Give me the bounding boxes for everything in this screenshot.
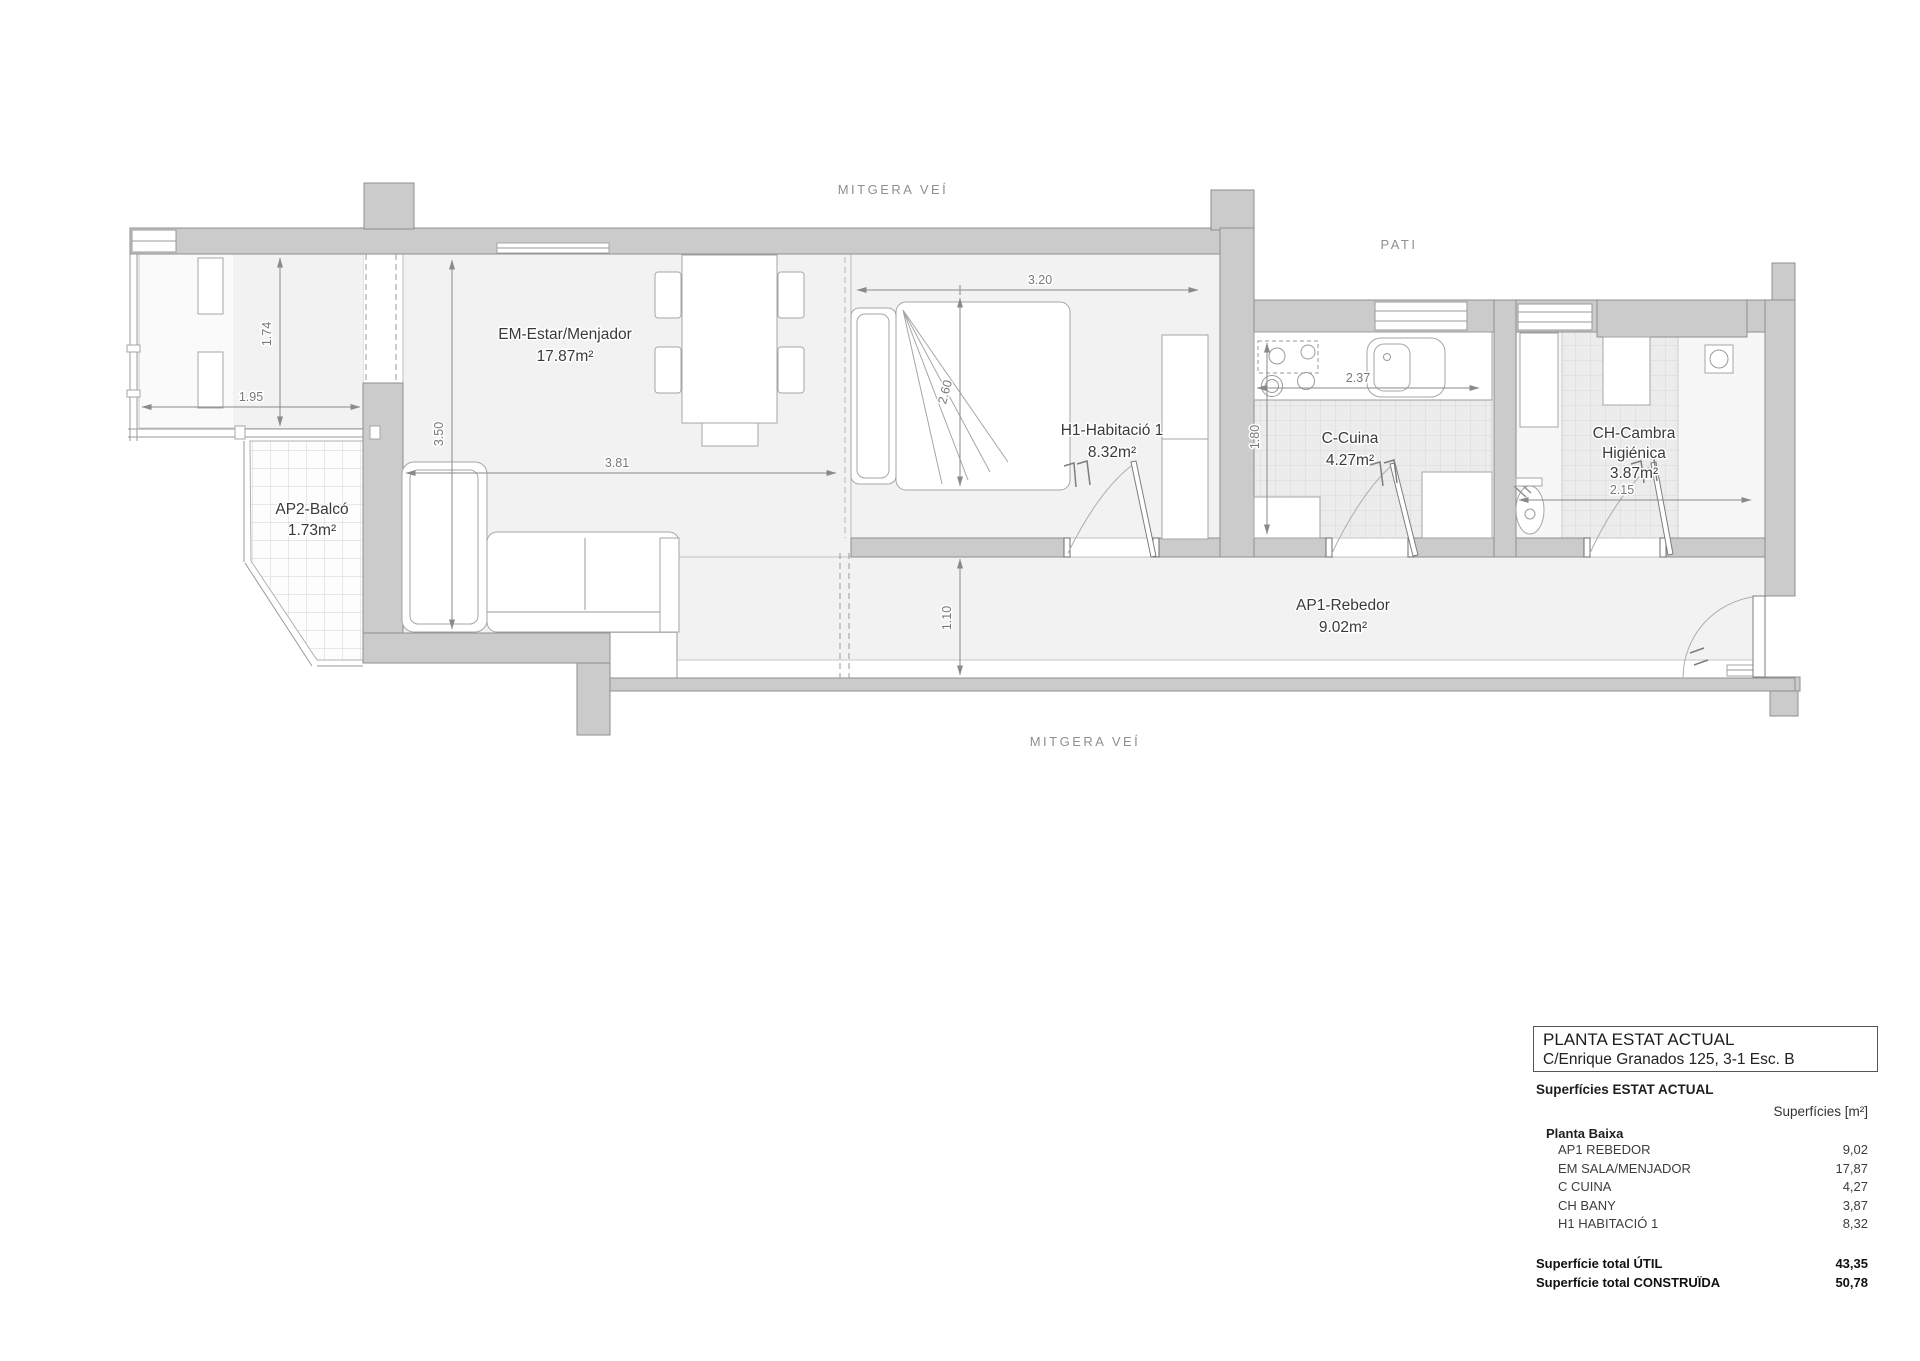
kitchen-cabinet	[1422, 472, 1492, 538]
gallery-planter	[198, 258, 223, 314]
room-label-living: EM-Estar/Menjador	[498, 326, 632, 343]
title-block: PLANTA ESTAT ACTUAL C/Enrique Granados 1…	[1533, 1026, 1878, 1072]
table-row: C CUINA 4,27	[1536, 1178, 1868, 1197]
kitchen-hall-wall-2	[1412, 538, 1494, 557]
row-label: AP1 REBEDOR	[1558, 1141, 1650, 1160]
row-label: C CUINA	[1558, 1178, 1611, 1197]
balcony-floor	[250, 441, 363, 660]
bathroom-top-block	[1597, 300, 1747, 337]
dim-3-20: 3.20	[1028, 273, 1052, 287]
bedroom-kitchen-wall	[1220, 228, 1254, 557]
table-row: CH BANY 3,87	[1536, 1197, 1868, 1216]
table-row: AP1 REBEDOR 9,02	[1536, 1141, 1868, 1160]
washing-machine	[1705, 345, 1733, 373]
row-label: CH BANY	[1558, 1197, 1616, 1216]
shower-tray	[1603, 337, 1650, 405]
table-row: EM SALA/MENJADOR 17,87	[1536, 1160, 1868, 1179]
sofa-seat	[487, 532, 679, 632]
dim-1-95: 1.95	[239, 390, 263, 404]
room-label-kitchen: C-Cuina	[1322, 430, 1379, 447]
table-row: H1 HABITACIÓ 1 8,32	[1536, 1215, 1868, 1234]
dim-3-81: 3.81	[605, 456, 629, 470]
door-jamb	[1064, 538, 1070, 557]
total-label: Superfície total ÚTIL	[1536, 1254, 1662, 1273]
total-row: Superfície total ÚTIL 43,35	[1536, 1254, 1868, 1273]
dim-1-10: 1.10	[940, 606, 954, 630]
room-label-hall: AP1-Rebedor	[1296, 597, 1390, 614]
dining-table	[682, 255, 777, 423]
room-label-balcony: AP2-Balcó	[275, 501, 348, 518]
party-wall-label-top: MITGERA VEÍ	[838, 182, 949, 197]
dim-2-15: 2.15	[1610, 483, 1634, 497]
room-label-bedroom: H1-Habitació 1	[1061, 422, 1164, 439]
plan-address: C/Enrique Granados 125, 3-1 Esc. B	[1543, 1050, 1877, 1069]
kitchen-hall-wall	[1254, 538, 1330, 557]
room-area-kitchen: 4.27m²	[1326, 452, 1374, 469]
row-label: H1 HABITACIÓ 1	[1558, 1215, 1658, 1234]
top-party-wall	[130, 228, 1224, 254]
party-wall-label-bottom: MITGERA VEÍ	[1030, 734, 1141, 749]
chair	[702, 423, 758, 446]
chair	[778, 347, 804, 393]
glazing-mullion	[370, 426, 380, 439]
sofa-armrest	[660, 538, 679, 632]
plan-title: PLANTA ESTAT ACTUAL	[1543, 1029, 1877, 1050]
right-bottom-stub	[1770, 691, 1798, 716]
glazing-mullion	[235, 426, 245, 439]
bottom-step-block	[577, 663, 610, 735]
total-label: Superfície total CONSTRUÏDA	[1536, 1273, 1720, 1292]
sofa-cushion	[410, 470, 478, 624]
gallery-planter	[198, 352, 223, 408]
total-value: 50,78	[1835, 1273, 1868, 1292]
courtyard-label: PATI	[1381, 237, 1418, 252]
living-bottom-wall	[363, 633, 610, 663]
room-area-balcony: 1.73m²	[288, 522, 336, 539]
surfaces-table: Superfícies ESTAT ACTUAL Superfícies [m²…	[1536, 1082, 1868, 1292]
surfaces-heading: Superfícies ESTAT ACTUAL	[1536, 1082, 1868, 1097]
room-area-hall: 9.02m²	[1319, 619, 1367, 636]
surfaces-unit-header: Superfícies [m²]	[1536, 1104, 1868, 1119]
kitchen-cabinet-2	[1254, 497, 1320, 538]
room-area-living: 17.87m²	[537, 348, 594, 365]
door-jamb	[1326, 538, 1332, 557]
chair	[778, 272, 804, 318]
glazing-mullion	[127, 345, 140, 352]
bedroom-hall-wall	[851, 538, 1068, 557]
total-value: 43,35	[1835, 1254, 1868, 1273]
room-area-bath: 3.87m²	[1610, 465, 1658, 482]
hall-west-floor	[610, 633, 677, 660]
wardrobe-lower	[1162, 439, 1208, 539]
bath-cabinet	[1520, 333, 1558, 427]
row-value: 3,87	[1843, 1197, 1868, 1216]
top-wall-pillar-left	[364, 183, 414, 229]
toilet-shelf	[1516, 478, 1542, 486]
living-left-wall	[363, 383, 403, 633]
top-right-stub	[1772, 263, 1795, 302]
top-wall-pillar-right	[1211, 190, 1254, 230]
dim-1-80: 1.80	[1248, 425, 1262, 449]
surfaces-group: Planta Baixa	[1536, 1126, 1868, 1141]
bottom-party-wall	[610, 678, 1795, 691]
wardrobe-upper	[1162, 335, 1208, 439]
chair	[655, 272, 681, 318]
table-totals: Superfície total ÚTIL 43,35 Superfície t…	[1536, 1254, 1868, 1292]
kitchen-window	[1375, 302, 1467, 330]
row-value: 9,02	[1843, 1141, 1868, 1160]
right-outer-wall	[1765, 300, 1795, 596]
bath-hall-wall	[1516, 538, 1587, 557]
room-label-bath-2: Higiénica	[1602, 445, 1666, 462]
bed-pillow	[857, 314, 889, 478]
dim-2-37: 2.37	[1346, 371, 1370, 385]
door-jamb	[1584, 538, 1590, 557]
kitchen-bath-wall	[1494, 300, 1516, 557]
bath-hall-wall-2	[1665, 538, 1765, 557]
dim-3-50: 3.50	[432, 422, 446, 446]
glazing-mullion	[127, 390, 140, 397]
bedroom-hall-wall-2	[1155, 538, 1220, 557]
room-area-bedroom: 8.32m²	[1088, 444, 1136, 461]
row-value: 8,32	[1843, 1215, 1868, 1234]
bathroom-window	[1518, 304, 1592, 330]
toilet	[1516, 486, 1544, 534]
room-label-bath: CH-Cambra	[1593, 425, 1676, 442]
row-value: 4,27	[1843, 1178, 1868, 1197]
dim-1-74: 1.74	[260, 322, 274, 346]
row-value: 17,87	[1835, 1160, 1868, 1179]
entrance-door-leaf	[1753, 596, 1765, 677]
total-row: Superfície total CONSTRUÏDA 50,78	[1536, 1273, 1868, 1292]
row-label: EM SALA/MENJADOR	[1558, 1160, 1691, 1179]
chair	[655, 347, 681, 393]
